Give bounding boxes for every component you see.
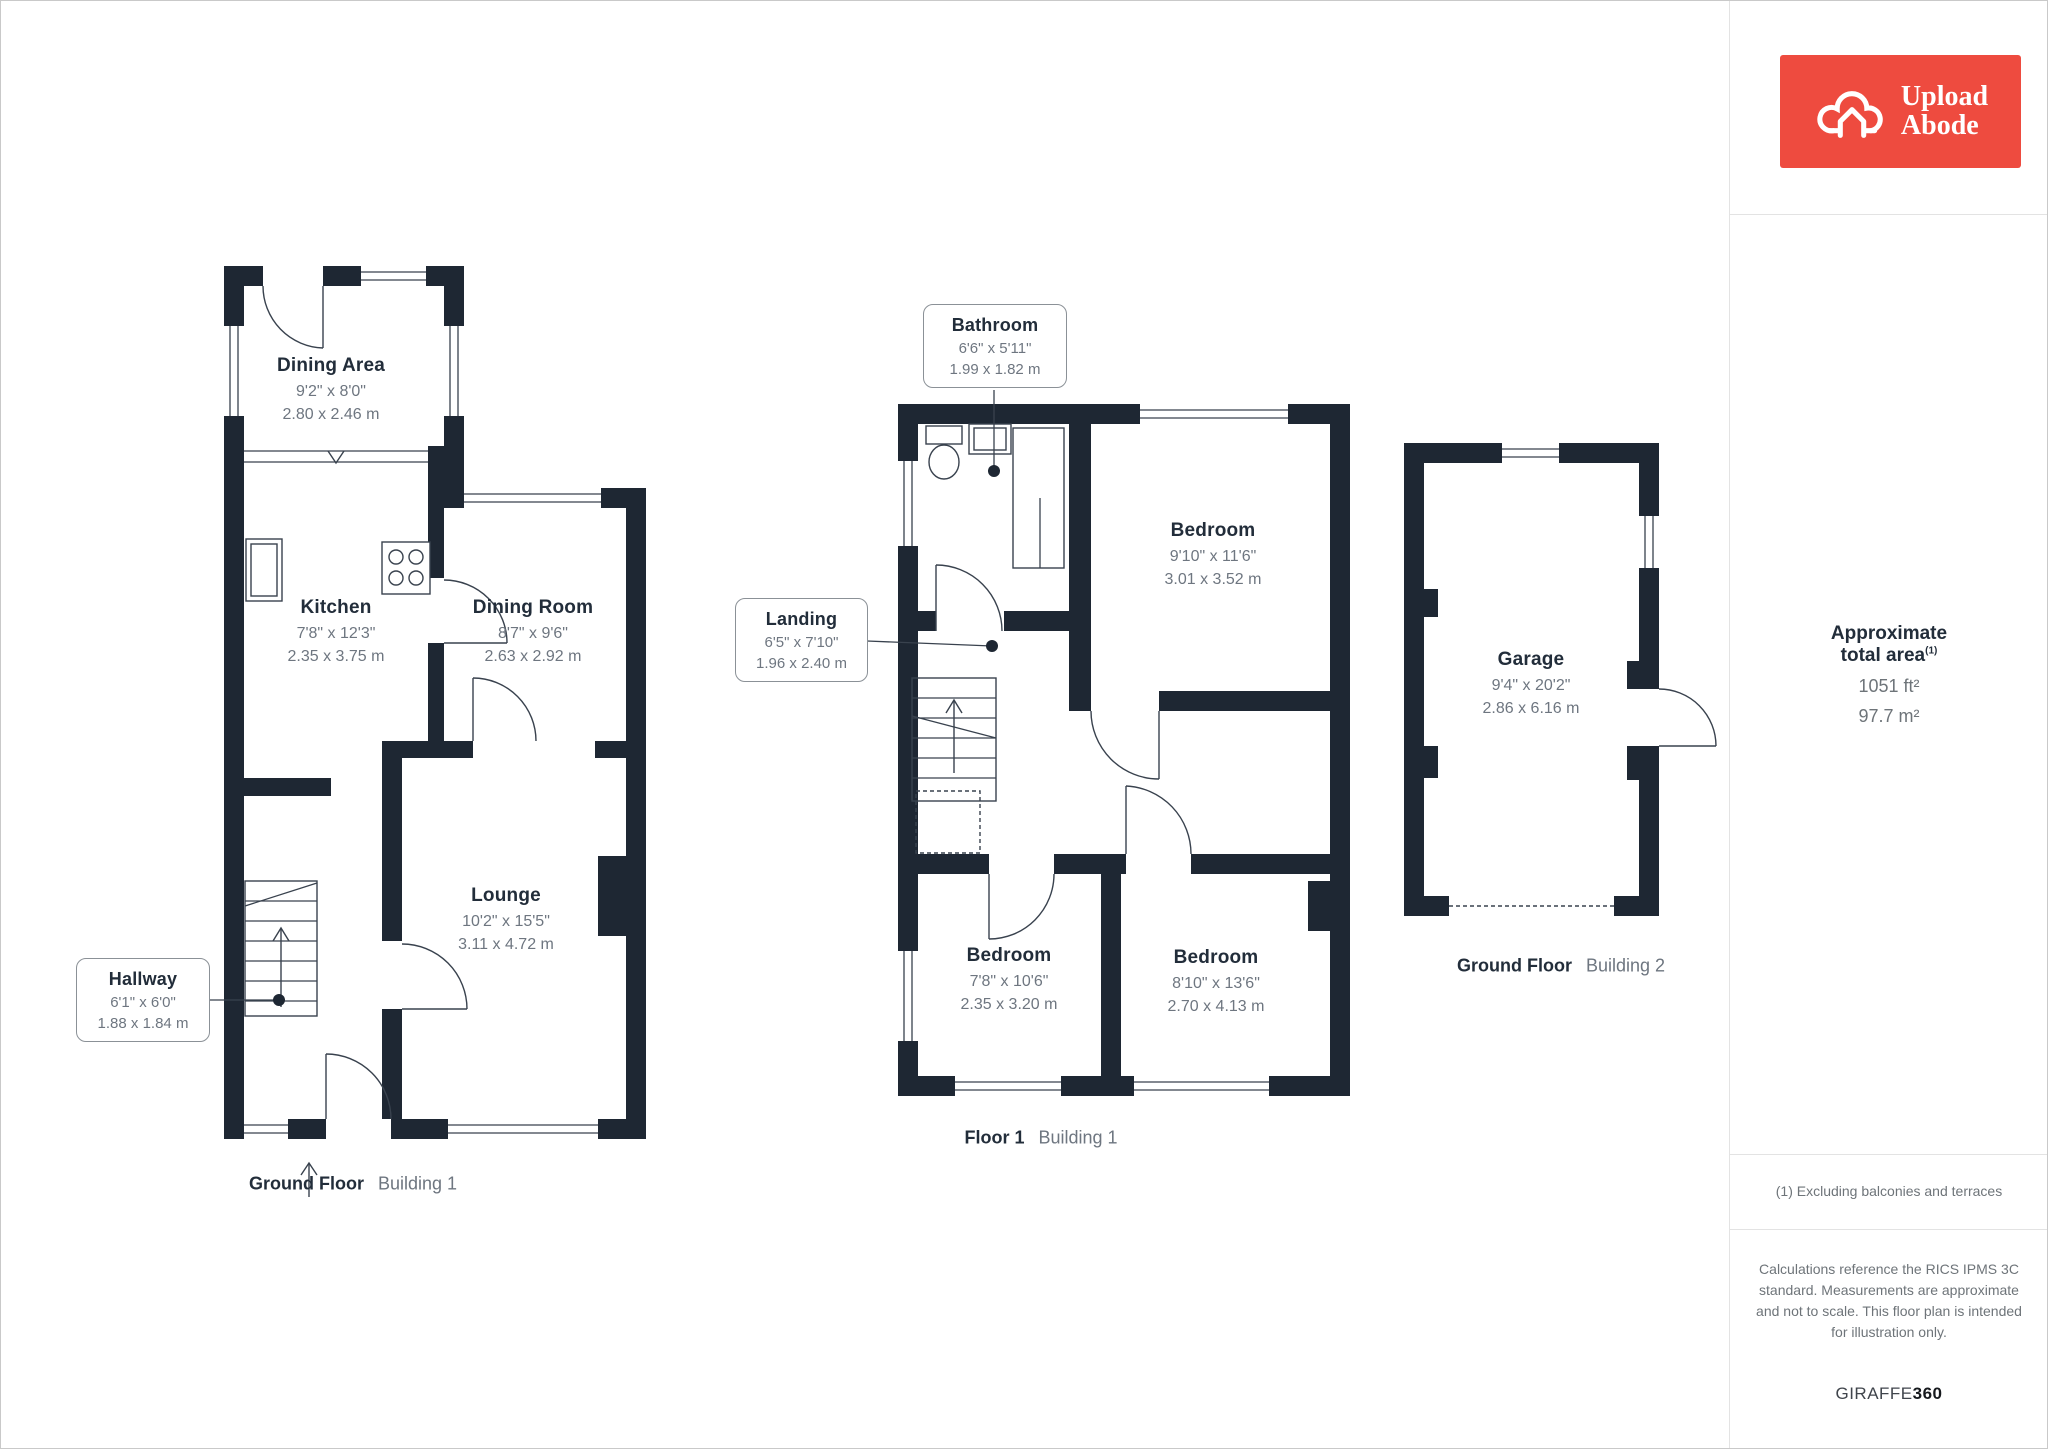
floorplan-page: Dining Area 9'2" x 8'0" 2.80 x 2.46 m Ki… [0,0,2048,1449]
window [361,266,426,286]
window [898,951,918,1041]
landing-leader [867,640,998,652]
total-area-title: Approximate total area(1) [1810,623,1968,667]
door [1639,689,1716,746]
callout-bathroom: Bathroom 6'6" x 5'11" 1.99 x 1.82 m [923,304,1067,388]
total-area-block: Approximate total area(1) 1051 ft² 97.7 … [1810,623,1968,727]
disclaimer-text: Calculations reference the RICS IPMS 3C … [1753,1259,2025,1343]
window [955,1076,1061,1096]
window [464,488,601,508]
callout-landing: Landing 6'5" x 7'10" 1.96 x 2.40 m [735,598,868,682]
front-door [326,1054,391,1139]
total-area-imperial: 1051 ft² [1810,676,1968,697]
kitchen-sink [246,539,282,601]
open-divider [244,451,428,463]
staircase [912,678,996,801]
window [898,461,918,546]
door [1091,711,1159,779]
door [989,874,1054,939]
window [1134,1076,1269,1096]
window [224,326,244,416]
door [473,678,536,741]
door [936,565,1002,631]
room-label-garage: Garage 9'4" x 20'2" 2.86 x 6.16 m [1483,646,1580,720]
window [1140,404,1288,424]
toilet-icon [926,426,962,479]
door [263,266,323,348]
upload-abode-logo: Upload Abode [1780,55,2021,168]
window [444,326,464,416]
sidebar-section-divider [1730,1154,2047,1155]
area-footnote: (1) Excluding balconies and terraces [1776,1183,2002,1199]
chimney-breast [598,856,626,936]
floor1-building1-plan [867,390,1350,1096]
cloud-house-icon [1813,80,1891,144]
room-label-lounge: Lounge 10'2" x 15'5" 3.11 x 4.72 m [458,882,554,956]
window [244,1119,288,1139]
shower-enclosure [1013,428,1064,568]
room-label-kitchen: Kitchen 7'8" x 12'3" 2.35 x 3.75 m [288,594,385,668]
storage-closet [916,791,980,853]
ground-floor-building1-plan [209,266,646,1197]
sidebar-divider [1729,1,1730,1448]
window [1502,443,1559,463]
sidebar-section-divider [1730,214,2047,215]
room-label-bedroom-3: Bedroom 8'10" x 13'6" 2.70 x 4.13 m [1168,944,1265,1018]
floor-label-f1-b1: Floor 1Building 1 [964,1128,1117,1149]
window [448,1119,598,1139]
logo-wordmark: Upload Abode [1901,83,1988,140]
sink-icon [969,424,1011,454]
hallway-leader [209,994,285,1006]
hob-icon [382,542,430,594]
giraffe360-brand: GIRAFFE360 [1835,1384,1942,1404]
callout-hallway: Hallway 6'1" x 6'0" 1.88 x 1.84 m [76,958,210,1042]
floor-label-gf-b1: Ground FloorBuilding 1 [249,1174,457,1195]
sidebar-section-divider [1730,1229,2047,1230]
window [1639,516,1659,568]
door [1126,786,1191,854]
room-label-dining-area: Dining Area 9'2" x 8'0" 2.80 x 2.46 m [277,352,385,426]
total-area-metric: 97.7 m² [1810,706,1968,727]
floor-label-gf-b2: Ground FloorBuilding 2 [1457,956,1665,977]
room-label-bedroom-2: Bedroom 7'8" x 10'6" 2.35 x 3.20 m [961,942,1058,1016]
floorplan-drawing [1,1,2048,1449]
room-label-dining-room: Dining Room 8'7" x 9'6" 2.63 x 2.92 m [473,594,593,668]
room-label-bedroom-1: Bedroom 9'10" x 11'6" 3.01 x 3.52 m [1165,517,1262,591]
